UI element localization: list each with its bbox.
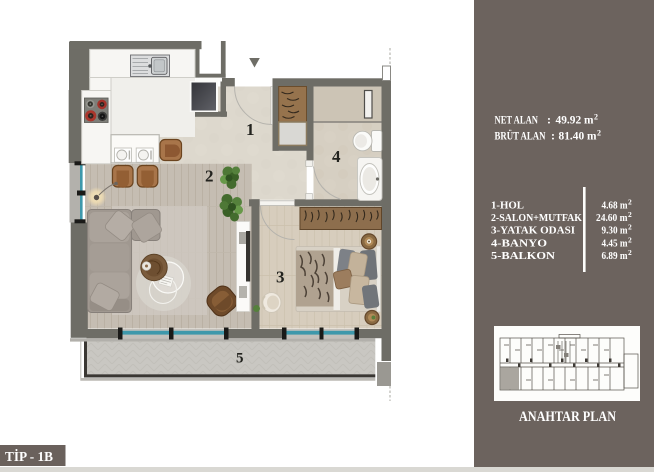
svg-text:3: 3 xyxy=(276,268,285,287)
svg-text:2: 2 xyxy=(628,235,632,244)
svg-text:4.68 m: 4.68 m xyxy=(602,200,628,212)
svg-text:2: 2 xyxy=(628,210,632,219)
svg-text:3-YATAK ODASI: 3-YATAK ODASI xyxy=(491,225,575,237)
svg-text::: : xyxy=(547,113,551,127)
svg-text:49.92 m: 49.92 m xyxy=(556,113,594,127)
svg-text:6.89 m: 6.89 m xyxy=(602,250,628,262)
svg-text:2: 2 xyxy=(628,198,632,207)
svg-text:NET ALAN: NET ALAN xyxy=(495,113,539,127)
svg-text:81.40 m: 81.40 m xyxy=(559,129,597,143)
svg-text:2: 2 xyxy=(597,129,601,138)
svg-text:2-SALON+MUTFAK: 2-SALON+MUTFAK xyxy=(491,212,582,224)
svg-text:9.30 m: 9.30 m xyxy=(602,225,628,237)
svg-text:2: 2 xyxy=(205,167,214,186)
svg-text:2: 2 xyxy=(594,113,598,122)
svg-text:4.45 m: 4.45 m xyxy=(602,237,628,249)
svg-text:4: 4 xyxy=(332,147,341,166)
svg-text:24.60 m: 24.60 m xyxy=(596,212,628,224)
svg-text:TİP - 1B: TİP - 1B xyxy=(5,448,53,465)
svg-text::: : xyxy=(551,129,555,143)
svg-text:1: 1 xyxy=(246,120,255,139)
svg-text:ANAHTAR PLAN: ANAHTAR PLAN xyxy=(519,409,616,425)
svg-text:BRÜT ALAN: BRÜT ALAN xyxy=(495,129,546,143)
svg-text:1-HOL: 1-HOL xyxy=(491,200,524,212)
svg-text:2: 2 xyxy=(628,248,632,257)
svg-text:5: 5 xyxy=(236,351,244,367)
svg-text:5-BALKON: 5-BALKON xyxy=(491,250,555,262)
svg-text:4-BANYO: 4-BANYO xyxy=(491,237,548,249)
svg-text:2: 2 xyxy=(628,223,632,232)
